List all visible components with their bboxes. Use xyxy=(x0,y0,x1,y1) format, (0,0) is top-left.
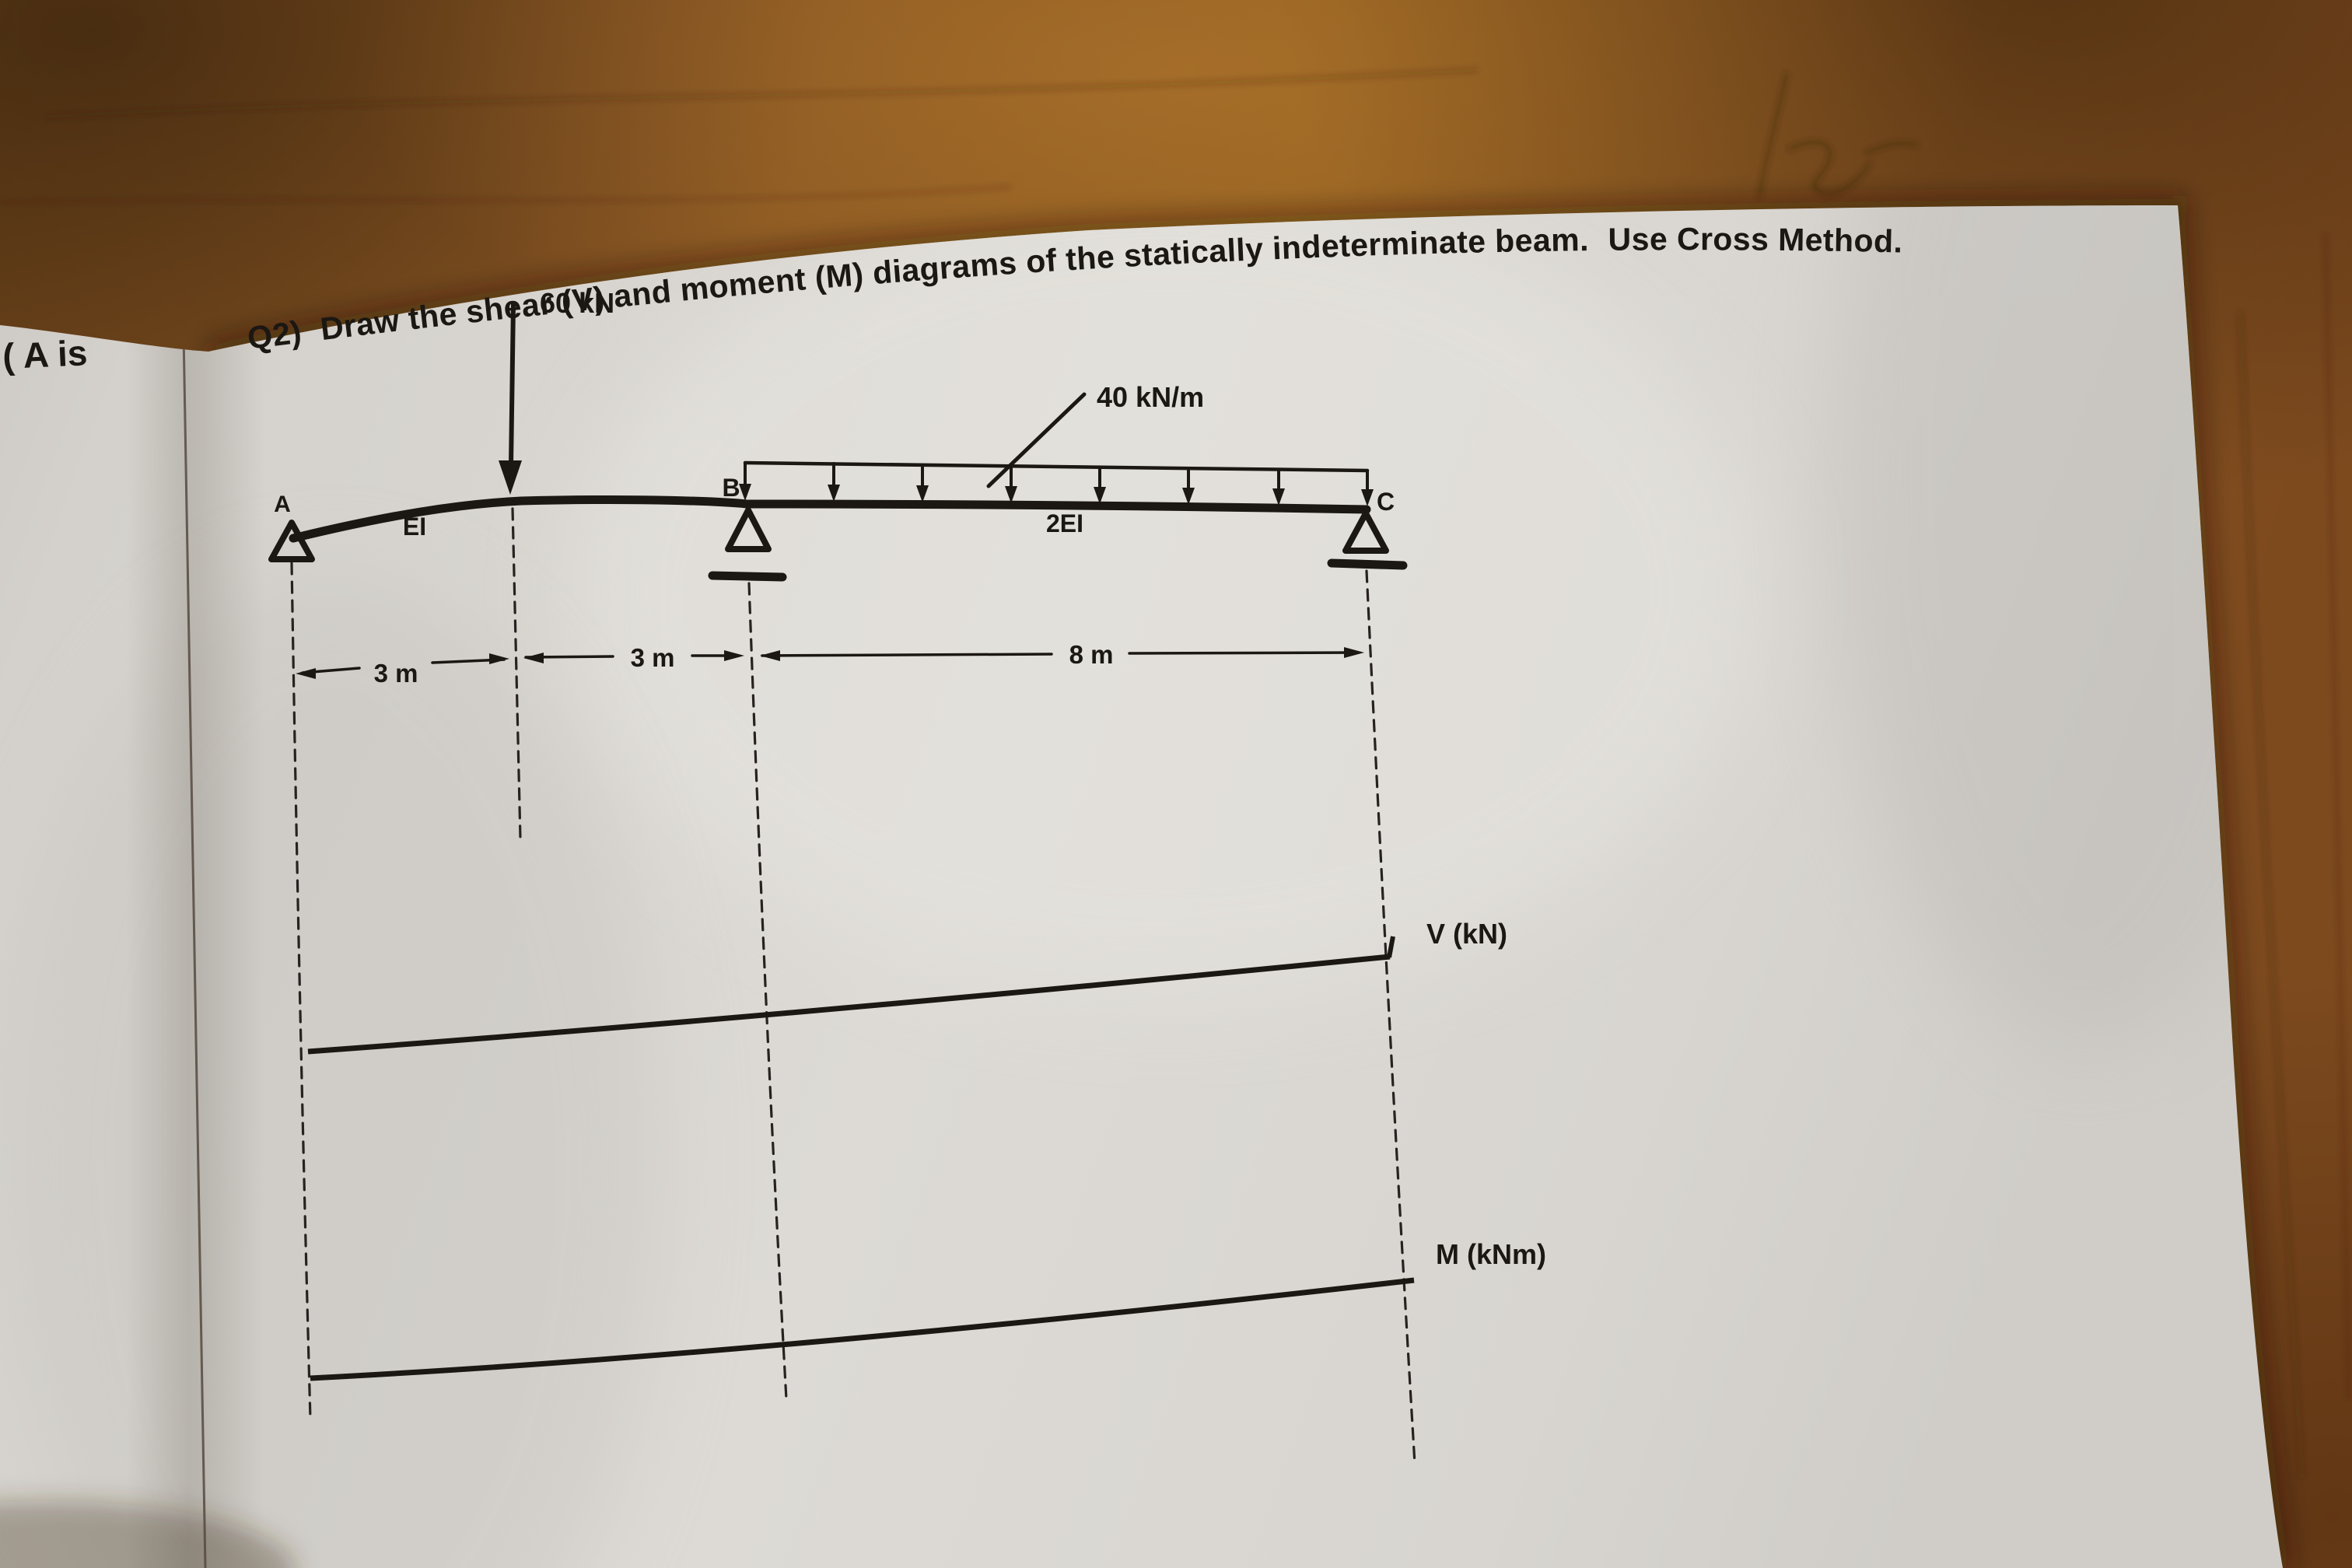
stiffness-ei-label: EI xyxy=(403,513,426,541)
point-load-shaft xyxy=(511,303,513,465)
point-load-label: 60 kN xyxy=(540,287,614,319)
dimension-span1-label: 3 m xyxy=(374,659,418,688)
dimension-span2-label: 3 m xyxy=(631,643,675,672)
support-c-roller-line xyxy=(1332,563,1403,565)
shear-axis-label: V (kN) xyxy=(1426,918,1507,950)
photographed-exam-page: ( A is Q2) Draw the shear (V) and moment… xyxy=(0,0,2352,1568)
question-method: Use Cross Method. xyxy=(1608,221,1903,259)
distributed-load-label: 40 kN/m xyxy=(1097,381,1204,413)
paper-highlight-center xyxy=(576,187,1758,996)
stiffness-2ei-label: 2EI xyxy=(1046,509,1083,537)
support-a-label: A xyxy=(274,492,291,517)
dimension-span3-label: 8 m xyxy=(1069,640,1114,669)
support-c-label: C xyxy=(1377,488,1395,516)
question-number: Q2) xyxy=(245,314,303,356)
left-page-text: ( A is xyxy=(2,332,88,376)
support-b-label: B xyxy=(722,474,740,502)
support-b-roller-line xyxy=(712,576,782,577)
moment-axis-label: M (kNm) xyxy=(1436,1238,1546,1270)
